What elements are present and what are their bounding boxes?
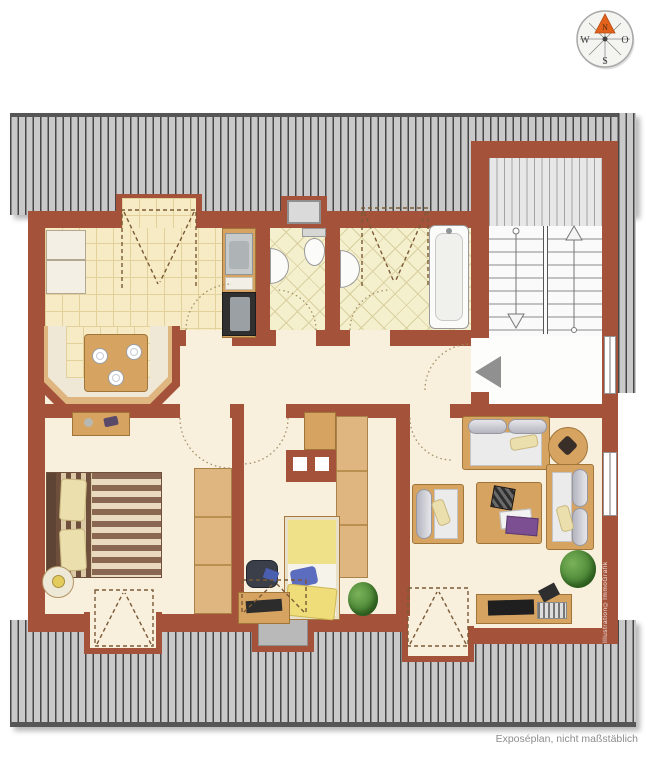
kitchen-cabinet: [46, 260, 86, 294]
kitchen-cabinet: [46, 230, 86, 260]
stairwell-roof-hatch: [489, 158, 602, 226]
child-wardrobe: [336, 416, 368, 578]
bedroom-dormer-floor: [90, 612, 156, 648]
bedroom-wardrobe: [194, 468, 232, 614]
toilet-tank: [302, 228, 326, 237]
bath-south-wall-1: [340, 330, 350, 346]
wc-south-wall-2: [316, 330, 325, 346]
dining-plate: [108, 370, 124, 386]
bathtub-inner: [435, 233, 463, 321]
stair-landing-floor: [489, 336, 602, 404]
floor-plan: N W O S Illustration©ImmoGrafik Exposépl…: [0, 0, 645, 757]
stairwell-wall-top: [471, 141, 618, 158]
dining-plate: [126, 344, 142, 360]
wardrobe-divider: [337, 470, 367, 472]
magazine: [505, 516, 538, 537]
kitchen-dormer-floor: [122, 198, 196, 228]
bedroom-child-wall: [232, 404, 244, 616]
dresser-decor: [84, 418, 93, 427]
kitchen-sink-bowl: [229, 241, 249, 269]
armchair-cushion: [416, 489, 432, 539]
bedside-lamp: [52, 575, 65, 588]
sofa-cushion: [572, 508, 588, 546]
living-dormer-floor: [408, 626, 468, 656]
bath-south-wall-2: [390, 330, 473, 346]
stairs-floor: [489, 226, 602, 336]
bed-duvet: [92, 473, 161, 577]
sofa-cushion: [508, 419, 547, 434]
wardrobe-divider: [337, 524, 367, 526]
hall-wardrobe: [304, 412, 336, 450]
tv: [488, 599, 534, 615]
wall-top: [28, 211, 478, 228]
bed-pillow: [59, 528, 87, 571]
compass-west-label: W: [580, 35, 590, 46]
watermark: Illustration©ImmoGrafik: [602, 535, 616, 643]
child-room-plant: [348, 582, 378, 616]
child-bed-duvet: [284, 583, 337, 620]
compass-south-label: S: [602, 56, 608, 67]
chimney-flue: [315, 457, 329, 471]
living-room-plant: [560, 550, 596, 588]
compass-rose: N W O S: [572, 6, 638, 72]
bed-pillow: [59, 478, 87, 521]
stereo: [537, 602, 567, 619]
compass-north-label: N: [602, 23, 608, 32]
wardrobe-divider: [195, 564, 231, 566]
desk-monitor: [246, 599, 283, 613]
wc-south-wall-1: [270, 330, 276, 346]
stairwell-window-frame: [609, 337, 611, 393]
dining-plate: [92, 348, 108, 364]
wc-bath-wall: [325, 226, 340, 346]
compass-east-label: O: [621, 35, 628, 46]
living-room-window-frame: [609, 453, 611, 515]
sofa-cushion: [572, 469, 588, 507]
bathtub-faucet: [446, 228, 452, 234]
bedroom-dresser: [72, 412, 130, 436]
kitchen-wc-wall: [254, 226, 270, 346]
sofa-cushion: [468, 419, 507, 434]
caption: Exposéplan, nicht maßstäblich: [300, 733, 638, 749]
wall-left: [28, 211, 45, 632]
child-living-wall: [396, 404, 410, 616]
kitchen-worktop: [225, 277, 253, 290]
entrance-opening: [471, 338, 489, 392]
child-bed-mattress: [288, 520, 336, 564]
wardrobe-divider: [195, 516, 231, 518]
roof-ridge-bottom: [10, 722, 636, 727]
wc-window: [287, 200, 321, 224]
game-board: [490, 485, 515, 510]
bed-headboard: [47, 473, 56, 577]
roof-eave-right: [618, 113, 636, 393]
kitchen-stove-front: [230, 297, 250, 331]
chimney-flue: [293, 457, 307, 471]
roof-ridge-top: [10, 113, 636, 117]
wall-bottom-left: [28, 614, 408, 632]
